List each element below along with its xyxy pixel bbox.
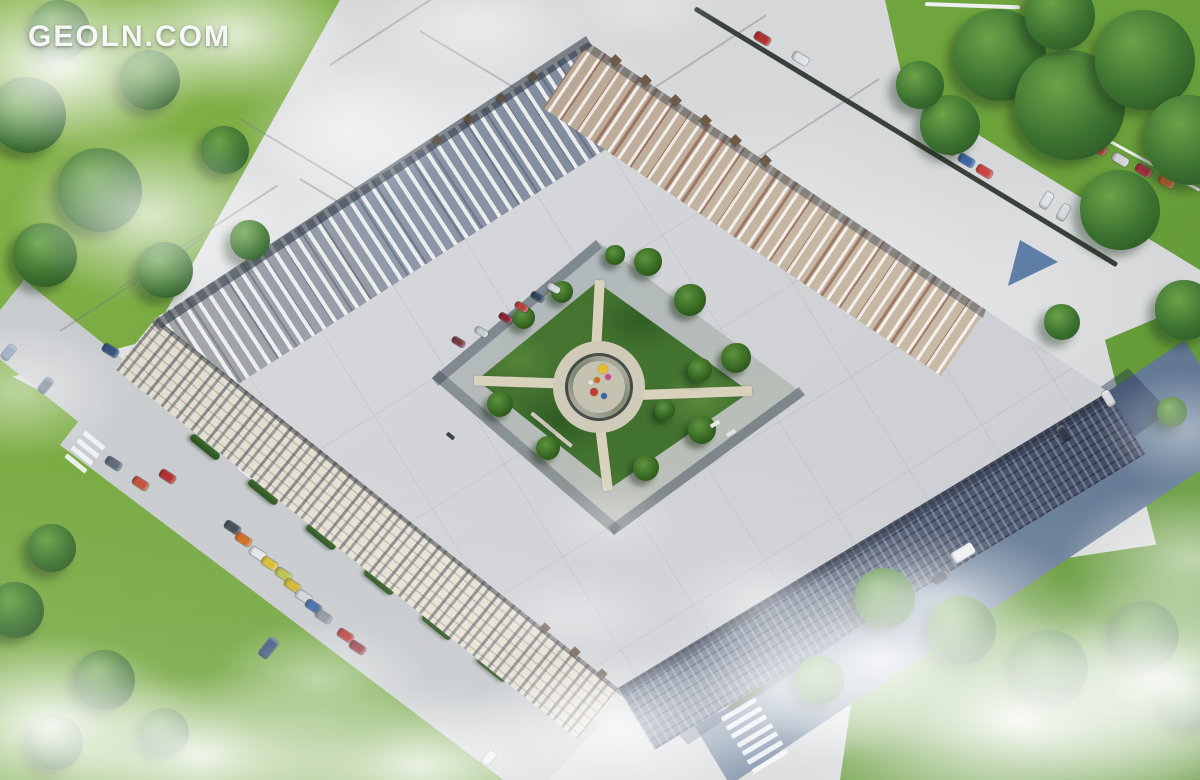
scene: GEOLN.COM (0, 0, 1200, 780)
watermark: GEOLN.COM (28, 20, 231, 54)
atmospheric-haze (0, 0, 1200, 780)
